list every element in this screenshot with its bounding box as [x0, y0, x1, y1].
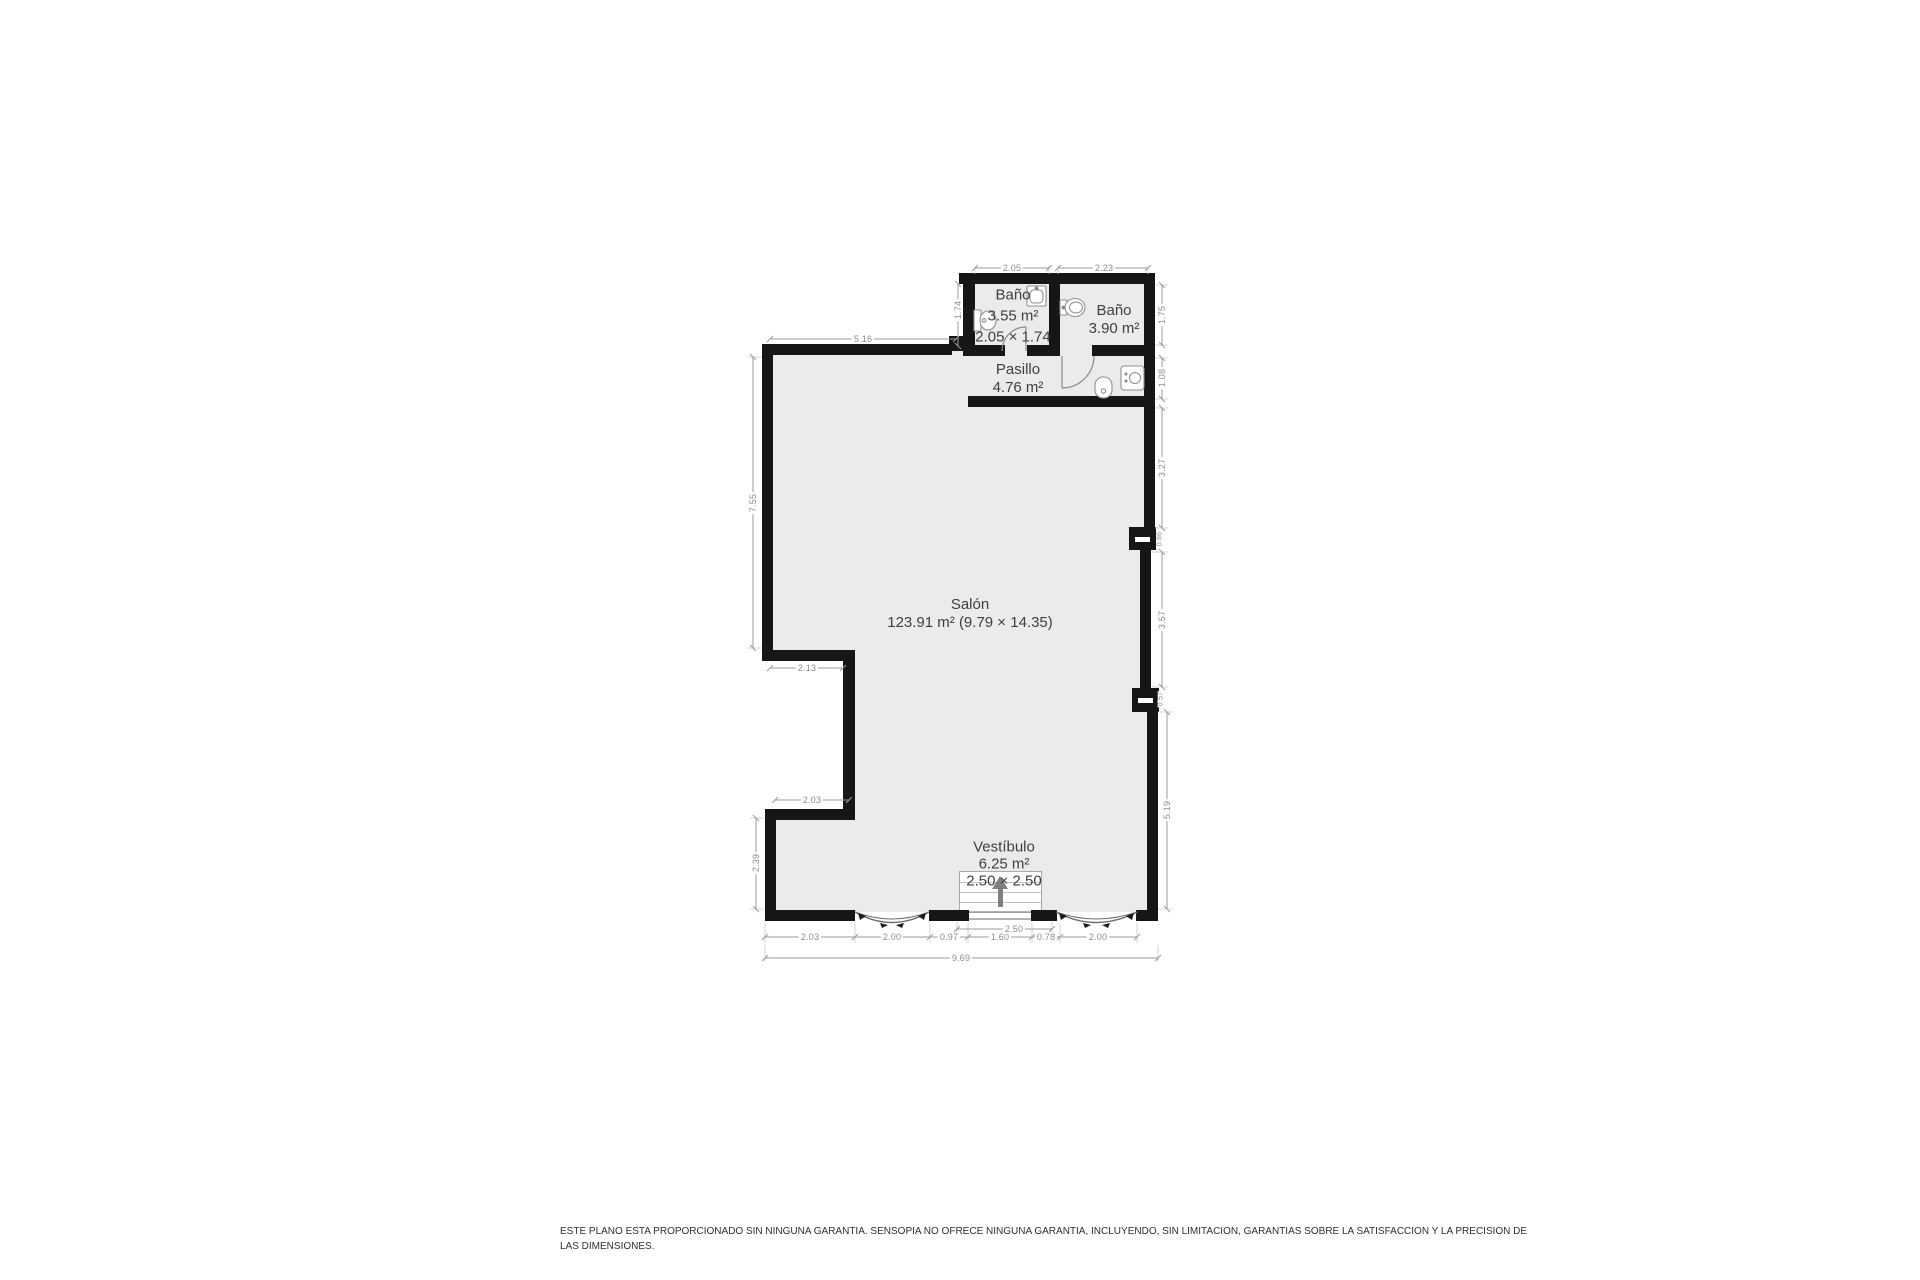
room-size: 2.05 × 1.74 [975, 327, 1050, 348]
room-name: Baño [1089, 302, 1140, 320]
dimension-label-left-lower: 2.39 [751, 852, 761, 874]
entrance-threshold [969, 912, 1031, 919]
dimension-label-pillar-lower: 0.57 [1158, 691, 1165, 707]
dimension-label-right-middle: 3.57 [1157, 609, 1167, 631]
wall-segment [1031, 910, 1057, 921]
dimension-label-notch-bottom: 2.03 [801, 795, 823, 805]
room-area: 123.91 m² (9.79 × 14.35) [887, 614, 1053, 632]
wall-segment [929, 910, 969, 921]
pillar-slot [1138, 698, 1153, 703]
dimension-label-right-lower: 5.19 [1162, 799, 1172, 821]
dimension-label-top-wall: 5.16 [852, 334, 874, 344]
dimension-label-left-upper: 7.55 [748, 492, 758, 514]
dimension-label-bottom-5: 0.78 [1035, 932, 1057, 942]
wall-segment [765, 809, 776, 921]
wall-segment [765, 910, 855, 921]
room-name: Salón [887, 596, 1053, 614]
dimension-label-pasillo-height: 1.08 [1157, 367, 1167, 389]
dimension-label-bano-right-width: 2.23 [1093, 263, 1115, 273]
dimension-label-pillar-upper: 0.86 [1157, 531, 1164, 547]
room-label-bano-left: Baño 3.55 m² 2.05 × 1.74 [975, 285, 1050, 348]
dimension-label-bano-right-height: 1.75 [1157, 304, 1167, 326]
exterior-notch [762, 661, 854, 809]
wall-segment [762, 344, 773, 661]
wall-segment [762, 650, 854, 661]
wall-segment [765, 809, 855, 820]
room-label-vestibulo: Vestíbulo 6.25 m² 2.50 × 2.50 [966, 839, 1041, 890]
disclaimer-line-1: ESTE PLANO ESTA PROPORCIONADO SIN NINGUN… [560, 1224, 1527, 1239]
wall-segment [762, 344, 952, 355]
room-area: 6.25 m² [966, 856, 1041, 873]
pillar-slot [1135, 537, 1150, 542]
dimension-label-right-upper: 3.27 [1157, 457, 1167, 479]
room-label-bano-right: Baño 3.90 m² [1089, 302, 1140, 338]
wall-segment [843, 650, 855, 820]
dimension-label-bottom-3: 0.97 [938, 932, 960, 942]
wall-segment [1140, 548, 1151, 693]
room-area: 3.90 m² [1089, 320, 1140, 338]
dimension-label-bottom-1: 2.03 [799, 932, 821, 942]
dimension-label-bottom-6: 2.00 [1087, 932, 1109, 942]
window-tick-icon [858, 913, 1134, 928]
dimension-label-notch-top: 2.13 [796, 663, 818, 673]
floor-plan: 2.05 2.23 5.16 1.74 1.75 1.08 3.27 0.86 … [0, 0, 1920, 1280]
wall-segment [1147, 711, 1158, 921]
room-label-salon: Salón 123.91 m² (9.79 × 14.35) [887, 596, 1053, 632]
up-arrow-stem [998, 888, 1003, 907]
dimension-label-bottom-total: 9.69 [950, 953, 972, 963]
room-area: 3.55 m² [975, 306, 1050, 327]
dimension-label-bano-left-height: 1.74 [953, 299, 963, 321]
room-size: 2.50 × 2.50 [966, 873, 1041, 890]
dimension-label-bottom-2: 2.00 [881, 932, 903, 942]
room-name: Vestíbulo [966, 839, 1041, 856]
disclaimer-text: ESTE PLANO ESTA PROPORCIONADO SIN NINGUN… [560, 1224, 1527, 1254]
dimension-label-vestibulo-width: 2.50 [1003, 924, 1025, 934]
room-label-pasillo: Pasillo 4.76 m² [993, 361, 1044, 397]
room-name: Baño [975, 285, 1050, 306]
disclaimer-line-2: LAS DIMENSIONES. [560, 1239, 1527, 1254]
wall-segment [1144, 273, 1155, 529]
room-area: 4.76 m² [993, 379, 1044, 397]
window-arc [855, 912, 1137, 923]
room-name: Pasillo [993, 361, 1044, 379]
wall-segment [968, 396, 1155, 407]
wall-segment [963, 273, 975, 353]
dimension-label-bano-left-width: 2.05 [1001, 263, 1023, 273]
